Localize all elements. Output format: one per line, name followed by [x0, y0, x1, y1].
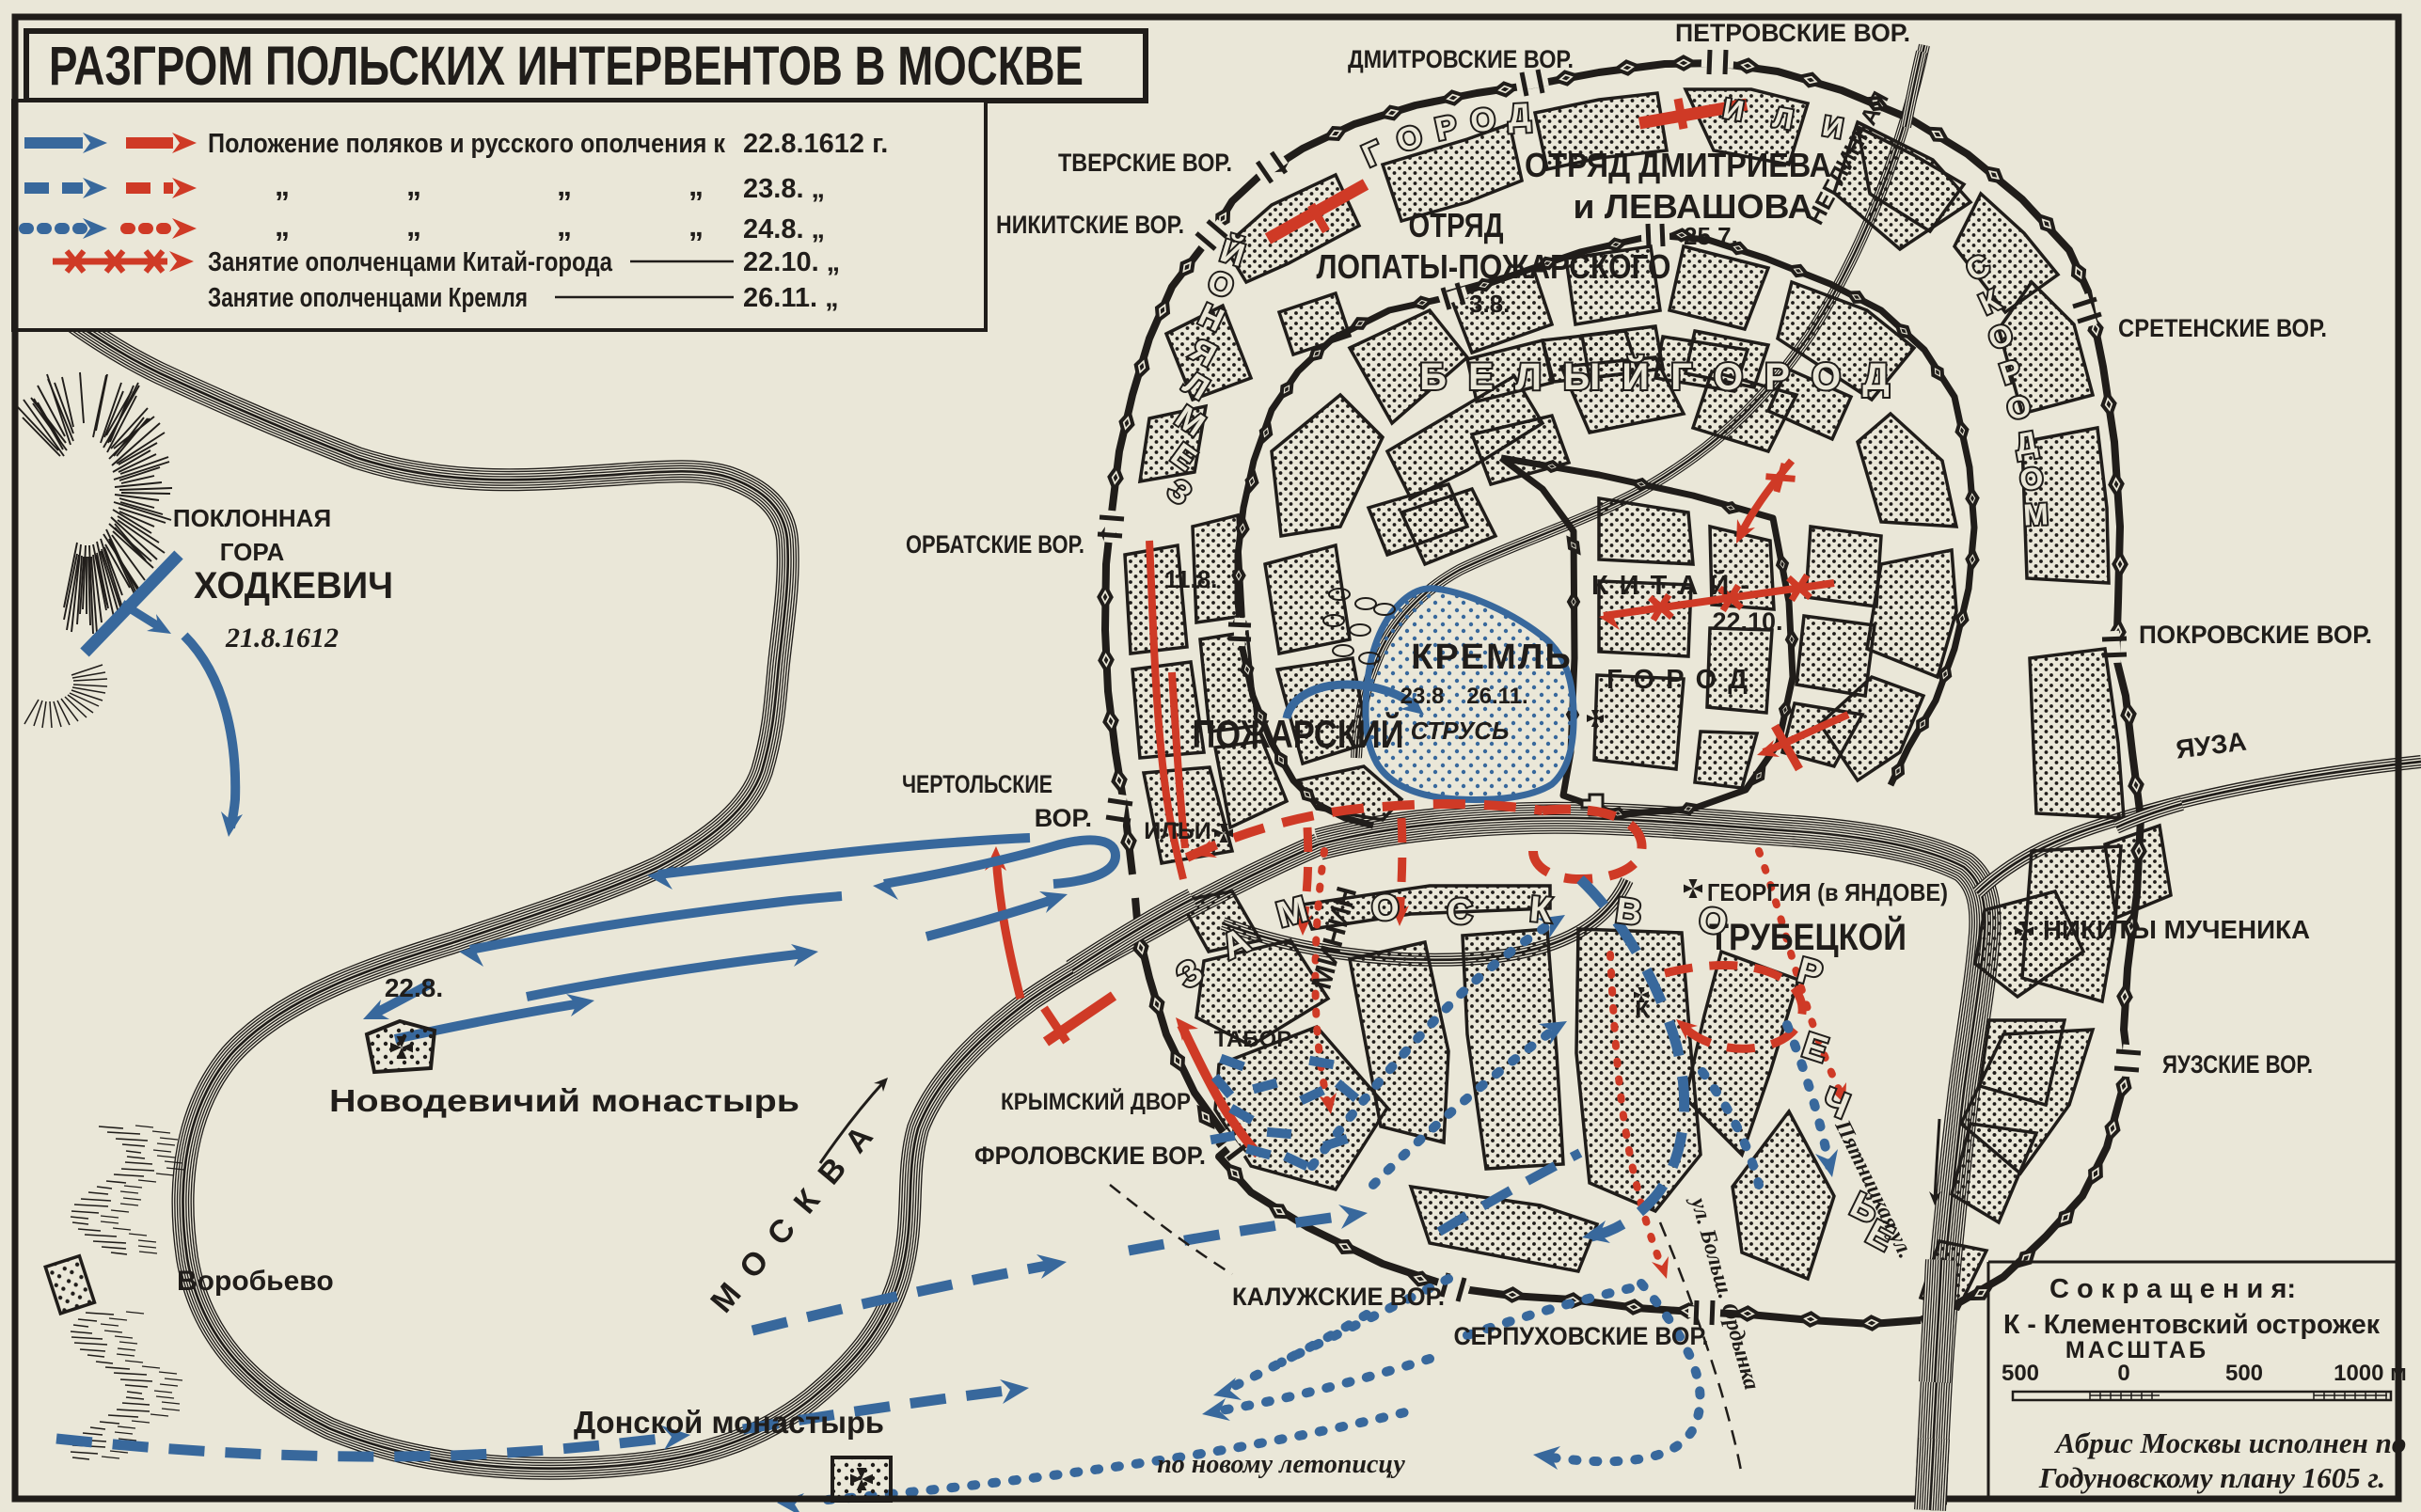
svg-text:ГЕОРГИЯ (в ЯНДОВЕ): ГЕОРГИЯ (в ЯНДОВЕ) — [1707, 878, 1948, 906]
svg-text:Занятие ополченцами Кремля: Занятие ополченцами Кремля — [208, 283, 528, 313]
svg-text:500: 500 — [2002, 1361, 2039, 1386]
svg-text:ЧЕРТОЛЬСКИЕ: ЧЕРТОЛЬСКИЕ — [902, 770, 1052, 798]
svg-text:26.11.: 26.11. — [1466, 684, 1527, 709]
svg-text:21.8.1612: 21.8.1612 — [225, 622, 339, 654]
svg-text:НИКИТЫ МУЧЕНИКА: НИКИТЫ МУЧЕНИКА — [2043, 915, 2310, 944]
svg-text:ЛОПАТЫ-ПОЖАРСКОГО: ЛОПАТЫ-ПОЖАРСКОГО — [1317, 247, 1671, 286]
svg-text:„: „ — [557, 209, 572, 243]
svg-text:500: 500 — [2225, 1361, 2263, 1386]
svg-text:23.8. „: 23.8. „ — [743, 174, 825, 204]
svg-text:С: С — [1447, 892, 1472, 932]
svg-text:23.8: 23.8 — [1400, 684, 1445, 709]
svg-text:К: К — [1635, 995, 1650, 1023]
svg-text:Воробьево: Воробьево — [177, 1266, 334, 1297]
svg-text:ПЕТРОВСКИЕ ВОР.: ПЕТРОВСКИЕ ВОР. — [1675, 19, 1910, 47]
svg-text:НИКИТСКИЕ ВОР.: НИКИТСКИЕ ВОР. — [996, 211, 1184, 239]
svg-text:СТРУСЬ: СТРУСЬ — [1411, 717, 1510, 745]
svg-text:ОТРЯД ДМИТРИЕВА: ОТРЯД ДМИТРИЕВА — [1525, 146, 1831, 184]
svg-text:22.10.: 22.10. — [1712, 607, 1782, 636]
svg-text:К И Т А Й -: К И Т А Й - — [1591, 569, 1751, 601]
svg-text:С о к р а щ е н и я:: С о к р а щ е н и я: — [2049, 1274, 2296, 1304]
svg-text:24.8. „: 24.8. „ — [743, 214, 825, 244]
svg-text:ТАБОР: ТАБОР — [1214, 1027, 1291, 1052]
svg-text:К: К — [1528, 890, 1555, 931]
svg-text:Абрис Москвы исполнен по: Абрис Москвы исполнен по — [2054, 1426, 2407, 1459]
svg-text:22.8.1612 г.: 22.8.1612 г. — [743, 129, 888, 159]
svg-text:Положение поляков и русского о: Положение поляков и русского ополчения к — [208, 129, 725, 159]
svg-text:Занятие ополченцами Китай-горо: Занятие ополченцами Китай-города — [208, 247, 613, 277]
svg-text:3.8.: 3.8. — [1469, 290, 1510, 318]
svg-text:Б Е Л Ы Й Г О Р О Д: Б Е Л Ы Й Г О Р О Д — [1419, 354, 1895, 398]
svg-text:Донской монастырь: Донской монастырь — [574, 1405, 884, 1440]
svg-text:„: „ — [688, 209, 704, 243]
svg-text:ГОРА: ГОРА — [220, 538, 285, 566]
svg-text:РАЗГРОМ ПОЛЬСКИХ ИНТЕРВЕНТОВ: РАЗГРОМ ПОЛЬСКИХ ИНТЕРВЕНТОВ В МОСКВЕ — [49, 36, 1084, 97]
svg-text:ДМИТРОВСКИЕ ВОР.: ДМИТРОВСКИЕ ВОР. — [1348, 45, 1574, 73]
svg-text:В: В — [1613, 890, 1644, 933]
svg-text:„: „ — [406, 209, 421, 243]
svg-text:по новому летописцу: по новому летописцу — [1157, 1450, 1405, 1479]
svg-text:ФРОЛОВСКИЕ ВОР.: ФРОЛОВСКИЕ ВОР. — [974, 1142, 1206, 1170]
svg-text:ПОЖАРСКИЙ: ПОЖАРСКИЙ — [1193, 711, 1404, 756]
svg-text:ЯУЗСКИЕ ВОР.: ЯУЗСКИЕ ВОР. — [2162, 1050, 2313, 1079]
svg-text:ВОР.: ВОР. — [1035, 804, 1092, 832]
svg-text:КАЛУЖСКИЕ ВОР.: КАЛУЖСКИЕ ВОР. — [1232, 1283, 1445, 1311]
svg-text:М: М — [2022, 496, 2049, 531]
svg-text:ХОДКЕВИЧ: ХОДКЕВИЧ — [194, 565, 393, 606]
svg-text:СРЕТЕНСКИЕ ВОР.: СРЕТЕНСКИЕ ВОР. — [2118, 314, 2327, 342]
svg-text:О: О — [1468, 102, 1497, 140]
svg-text:К - Клементовский острожек: К - Клементовский острожек — [2003, 1310, 2380, 1340]
svg-text:„: „ — [688, 168, 704, 202]
svg-text:„: „ — [275, 168, 290, 202]
svg-text:0: 0 — [2117, 1361, 2129, 1386]
svg-text:О: О — [1369, 888, 1400, 929]
svg-text:22.10. „: 22.10. „ — [743, 247, 840, 277]
svg-text:МАСШТАБ: МАСШТАБ — [2065, 1337, 2208, 1363]
svg-text:„: „ — [406, 168, 421, 202]
svg-text:25.7.: 25.7. — [1684, 222, 1738, 250]
svg-text:Новодевичий монастырь: Новодевичий монастырь — [329, 1083, 799, 1118]
svg-text:ТВЕРСКИЕ ВОР.: ТВЕРСКИЕ ВОР. — [1058, 149, 1232, 177]
svg-text:ОТРЯД: ОТРЯД — [1409, 206, 1504, 244]
svg-text:ПОКЛОННАЯ: ПОКЛОННАЯ — [173, 504, 331, 532]
svg-text:22.8.: 22.8. — [385, 973, 443, 1002]
svg-text:и ЛЕВАШОВА: и ЛЕВАШОВА — [1574, 187, 1813, 226]
svg-text:ОРБАТСКИЕ ВОР.: ОРБАТСКИЕ ВОР. — [906, 530, 1084, 559]
svg-text:Г О Р О Д: Г О Р О Д — [1606, 665, 1749, 695]
svg-text:КРЕМЛЬ: КРЕМЛЬ — [1411, 638, 1573, 677]
svg-text:26.11. „: 26.11. „ — [743, 283, 839, 313]
svg-text:Годуновскому плану 1605 г.: Годуновскому плану 1605 г. — [2038, 1461, 2385, 1494]
svg-text:ПОКРОВСКИЕ ВОР.: ПОКРОВСКИЕ ВОР. — [2139, 621, 2372, 649]
svg-text:„: „ — [557, 168, 572, 202]
svg-text:О: О — [2018, 461, 2046, 496]
svg-text:СЕРПУХОВСКИЕ ВОР.: СЕРПУХОВСКИЕ ВОР. — [1454, 1322, 1709, 1350]
svg-text:11.8.: 11.8. — [1164, 565, 1217, 593]
svg-text:„: „ — [275, 209, 290, 243]
svg-text:КРЫМСКИЙ ДВОР: КРЫМСКИЙ ДВОР — [1001, 1087, 1191, 1115]
svg-text:Д: Д — [1507, 97, 1531, 134]
svg-text:ИЛЬИ: ИЛЬИ — [1144, 818, 1210, 844]
